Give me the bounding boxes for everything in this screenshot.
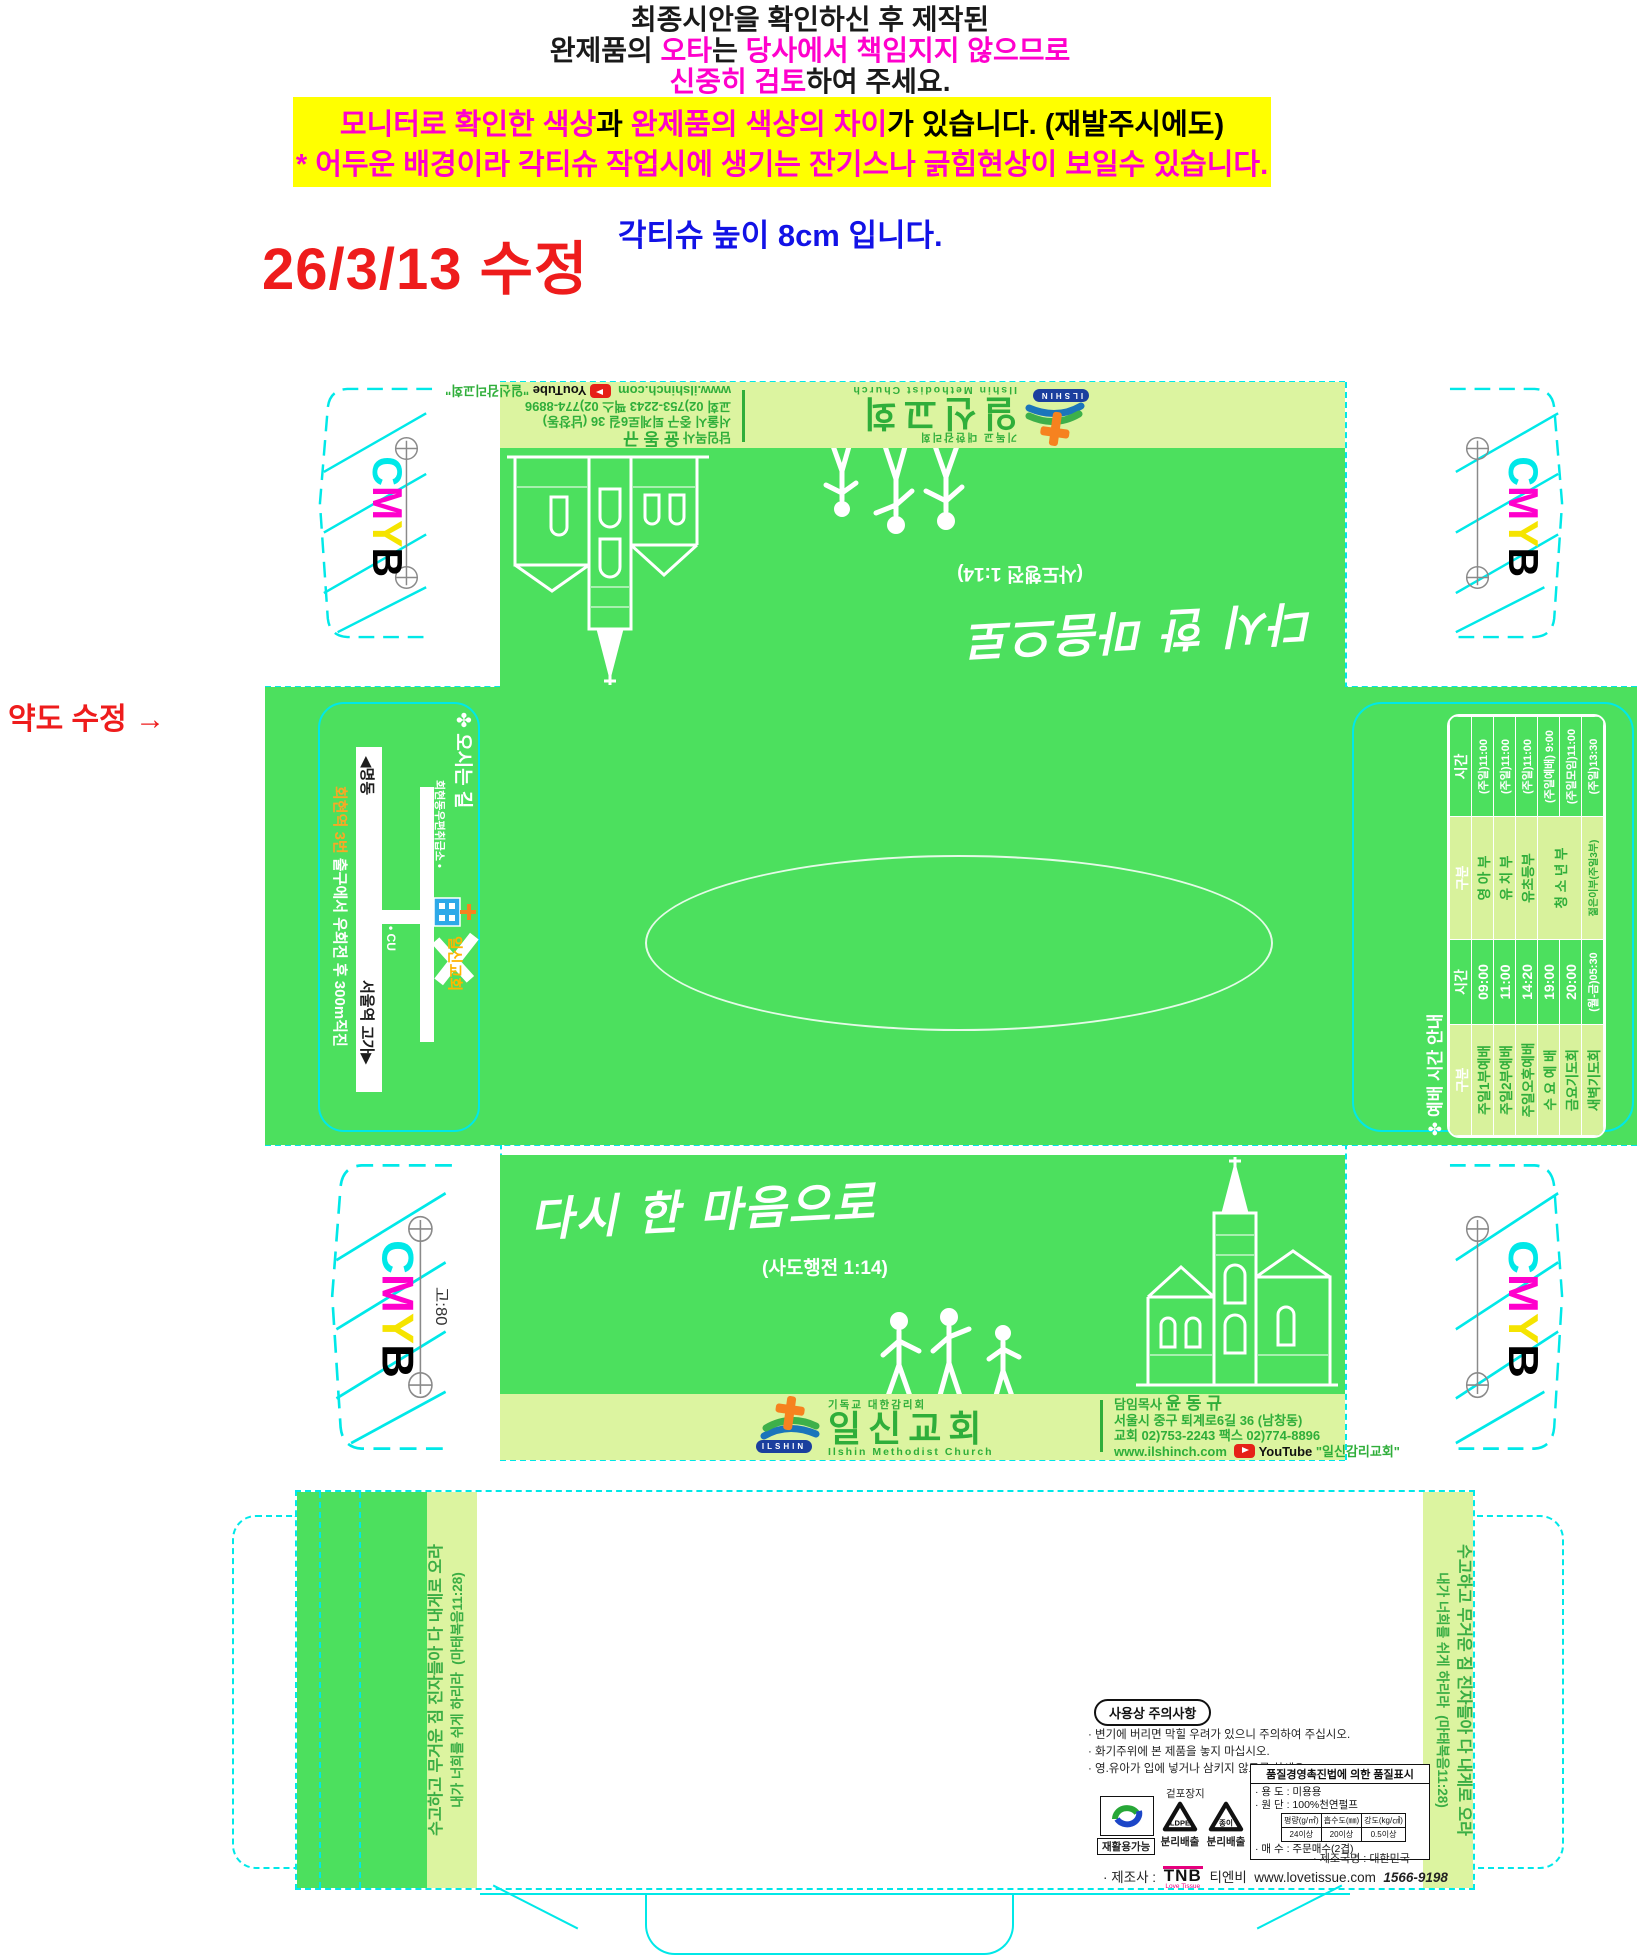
flap-top-right: CMYB (1448, 386, 1566, 640)
recycle-triangle-icon: LDPE (1160, 1800, 1200, 1834)
map-directions: 회현역 3번 출구에서 우회전 후 300m직진 (330, 786, 351, 1047)
flap-bottom-right: CMYB (1448, 1162, 1566, 1452)
manufacturer-line: · 제조사 : TNBLove Tissue 티엔비 www.lovetissu… (1103, 1866, 1448, 1892)
schedule-title: ✤ 예배 시간 안내 (1421, 1014, 1446, 1136)
church-name-en: Ilshin Methodist Church (828, 1446, 994, 1458)
map-revision-note: 약도 수정 → (8, 694, 165, 738)
cmyb-mark: CMYB (364, 456, 410, 577)
box-panel-front: 다시 한 마음으로 (사도행전 1:14) (500, 1155, 1345, 1460)
people-illustration (875, 1307, 1050, 1407)
map-title: ✤ 오시는 길 (451, 712, 478, 808)
cmyb-mark: CMYB (1500, 456, 1546, 577)
slogan-verse-ref: (사도행전 1:14) (762, 1253, 888, 1280)
quality-spec-box: 품질경영촉진법에 의한 품질표시 · 용 도 : 미용용 · 원 단 : 100… (1250, 1764, 1430, 1860)
quality-use: · 용 도 : 미용용 (1255, 1786, 1425, 1799)
recycle-symbol-paper: 종이 분리배출 (1206, 1800, 1246, 1849)
recycle-triangle-icon: 종이 (1206, 1800, 1246, 1834)
recyclable-mark (1100, 1796, 1154, 1836)
schedule-table-wrapper: 구분 시간 구분 시간 주일1부예배09:00 영 아 부(주일)11:00 주… (1447, 714, 1606, 1138)
care-item: · 화기주위에 본 제품을 놓지 마십시오. (1088, 1744, 1350, 1761)
phone-line: 교회 02)753-2243 팩스 02)774-8896 (445, 399, 731, 415)
tissue-opening-oval (645, 855, 1273, 1031)
flap-top-left: CMYB (316, 386, 434, 640)
col-header: 구분 (1450, 817, 1472, 940)
logo-text-block: 기독교 대한감리회 일신교회 Ilshin Methodist Church (828, 1397, 994, 1458)
proof-line-2: 완제품의 오타는 당사에서 책임지지 않으므로 (330, 35, 1290, 66)
schedule-row: 주일오후예배14:20 유초등부(주일)11:00 (1516, 717, 1538, 1136)
schedule-row: 수 요 예 배19:00 청 소 년 부(주일예배) 9:00 (1538, 717, 1560, 1136)
fold-line (319, 1492, 321, 1888)
phone-line: 교회 02)753-2243 팩스 02)774-8896 (1114, 1428, 1400, 1444)
map-panel: ✤ 오시는 길 회현동우편취급소 • 일신교회 • CU ◀명동 서울역 고가▶… (318, 702, 478, 1132)
proof-line-3: 신중히 검토하여 주세요. (330, 66, 1290, 97)
recyclable-mark-icon (1101, 1797, 1153, 1835)
bible-verse-right: 수고하고 무거운 짐 진자들아 다 내게로 오라 내가 너희를 쉬게 하리라 (… (1426, 1490, 1474, 1890)
quality-body: · 용 도 : 미용용 · 원 단 : 100%천연펄프 평량(g/㎡) 흡수도… (1251, 1784, 1429, 1859)
schedule-table: 구분 시간 구분 시간 주일1부예배09:00 영 아 부(주일)11:00 주… (1449, 716, 1604, 1136)
verse-line-2: 내가 너희를 쉬게 하리라 (마태복음11:28) (448, 1490, 468, 1890)
proof-line-1: 최종시안을 확인하신 후 제작된 (330, 4, 1290, 35)
church-name-en: Ilshin Methodist Church (851, 384, 1017, 396)
address-line: 서울시 중구 퇴계로6길 36 (남창동) (445, 414, 731, 430)
quality-header: 품질경영촉진법에 의한 품질표시 (1251, 1765, 1429, 1784)
web-line: www.ilshinch.com YouTube "일신감리교회" (1114, 1444, 1400, 1460)
banner-line-1: 모니터로 확인한 색상과 완제품의 색상의 차이가 있습니다. (재발주시에도) (293, 105, 1271, 145)
ilshin-badge: ILSHIN (1033, 389, 1089, 402)
map-label-myeongdong: ◀명동 (357, 756, 378, 795)
brand-footer-strip: ILSHIN 기독교 대한감리회 일신교회 Ilshin Methodist C… (500, 382, 1345, 448)
logo-badge-holder: ILSHIN (756, 1394, 816, 1454)
pastor-line: 담임목사 윤 동 규 (1114, 1396, 1400, 1413)
logo-badge-holder: ILSHIN (1029, 388, 1089, 448)
address-line: 서울시 중구 퇴계로6길 36 (남창동) (1114, 1413, 1400, 1429)
flap-bottom-left: CMYB 고:80 (328, 1162, 454, 1452)
slogan-calligraphy: 다시 한 마음으로 (529, 1166, 878, 1250)
schedule-header-row: 구분 시간 구분 시간 (1450, 717, 1472, 1136)
youtube-icon (590, 385, 611, 399)
contact-block: 담임목사 윤 동 규 서울시 중구 퇴계로6길 36 (남창동) 교회 02)7… (445, 383, 731, 446)
dieline-proof-sheet: 최종시안을 확인하신 후 제작된 완제품의 오타는 당사에서 책임지지 않으므로… (0, 0, 1639, 1959)
pastor-line: 담임목사 윤 동 규 (445, 430, 731, 447)
proof-warning-text: 최종시안을 확인하신 후 제작된 완제품의 오타는 당사에서 책임지지 않으므로… (330, 4, 1290, 97)
care-item: · 변기에 버리면 막힐 우려가 있으니 주의하여 주십시오. (1088, 1727, 1350, 1744)
logo-text-block: 기독교 대한감리회 일신교회 Ilshin Methodist Church (851, 384, 1017, 445)
contact-block: 담임목사 윤 동 규 서울시 중구 퇴계로6길 36 (남창동) 교회 02)7… (1114, 1396, 1400, 1459)
footer-divider (1100, 1400, 1103, 1452)
church-map-icon (432, 893, 476, 931)
map-church-label: 일신교회 (445, 936, 466, 991)
panel-content: 다시 한 마음으로 (사도행전 1:14) (500, 1155, 1345, 1460)
church-name: 일신교회 (851, 396, 1017, 430)
rotated-panel-content: 다시 한 마음으로 (사도행전 1:14) (500, 382, 1345, 687)
revision-date: 26/3/13 수정 (262, 222, 588, 306)
ilshin-badge: ILSHIN (756, 1440, 812, 1453)
side-tab-left (232, 1515, 297, 1869)
bible-verse-left: 수고하고 무거운 짐 진자들아 다 내게로 오라 내가 너희를 쉬게 하리라 (… (426, 1490, 474, 1890)
quality-spec-table: 평량(g/㎡) 흡수도(㎜) 강도(kg/㎠) 24이상 20이상 0.5이상 (1281, 1813, 1406, 1842)
map-poi-cu: • CU (384, 926, 398, 951)
glue-tab-outline (645, 1895, 1014, 1955)
col-header: 시간 (1450, 940, 1472, 1025)
worship-schedule-panel: ✤ 예배 시간 안내 구분 시간 구분 시간 주일1부예배09:00 영 아 부… (1421, 718, 1601, 1138)
fold-line (359, 1492, 361, 1888)
bottom-glue-strip (297, 1492, 427, 1888)
wrapper-label: 겉포장지 (1166, 1786, 1205, 1801)
recycle-symbol-ldpe: LDPE 분리배출 (1160, 1800, 1200, 1849)
slogan-verse-ref: (사도행전 1:14) (957, 562, 1083, 589)
col-header: 시간 (1450, 717, 1472, 817)
map-poi-post-office: 회현동우편취급소 • (432, 780, 448, 868)
people-illustration (795, 435, 970, 535)
glue-tab-edge (493, 1885, 579, 1930)
recycle-label: 분리배출 (1160, 1834, 1200, 1849)
map-label-seoul-station: 서울역 고가▶ (357, 980, 378, 1065)
verse-line-2: 내가 너희를 쉬게 하리라 (마태복음11:28) (1432, 1490, 1452, 1890)
banner-line-2: * 어두운 배경이라 각티슈 작업시에 생기는 잔기스나 긁힘현상이 보일수 있… (293, 145, 1271, 185)
quality-material: · 원 단 : 100%천연펄프 (1255, 1799, 1425, 1812)
web-line: www.ilshinch.com YouTube "일신감리교회" (445, 383, 731, 399)
schedule-row: 새벽기도회(월-금)05:30 젊은이부(주일3부)(주일)13:30 (1582, 717, 1604, 1136)
cmyb-mark: CMYB (1500, 1240, 1546, 1378)
schedule-row: 주일2부예배11:00 유 치 부(주일)11:00 (1494, 717, 1516, 1136)
schedule-row: 주일1부예배09:00 영 아 부(주일)11:00 (1472, 717, 1494, 1136)
country-of-origin: · 제조국명 : 대한민국 (1313, 1850, 1410, 1866)
cmyb-mark: CMYB (373, 1240, 422, 1378)
verse-line-1: 수고하고 무거운 짐 진자들아 다 내게로 오라 (426, 1490, 448, 1890)
recyclable-label: 재활용가능 (1097, 1838, 1155, 1855)
care-instructions-title: 사용상 주의사항 (1094, 1699, 1211, 1726)
recycle-label: 분리배출 (1206, 1834, 1246, 1849)
side-tab-right (1477, 1515, 1564, 1869)
church-illustration (502, 449, 717, 687)
col-header: 구분 (1450, 1025, 1472, 1136)
youtube-icon (1234, 1444, 1255, 1458)
svg-text:종이: 종이 (1219, 1818, 1233, 1828)
tissue-height-note: 각티슈 높이 8cm 입니다. (618, 210, 943, 255)
church-illustration (1128, 1155, 1343, 1393)
color-warning-banner: 모니터로 확인한 색상과 완제품의 색상의 차이가 있습니다. (재발주시에도)… (293, 97, 1271, 187)
church-name: 일신교회 (828, 1412, 994, 1446)
footer-divider (743, 390, 746, 442)
svg-text:LDPE: LDPE (1170, 1819, 1190, 1828)
box-panel-top-rotated: 다시 한 마음으로 (사도행전 1:14) (500, 382, 1345, 687)
brand-footer-strip: ILSHIN 기독교 대한감리회 일신교회 Ilshin Methodist C… (500, 1394, 1345, 1460)
verse-line-1: 수고하고 무거운 짐 진자들아 다 내게로 오라 (1452, 1490, 1474, 1890)
flap-gauge-note: 고:80 (432, 1287, 449, 1326)
slogan-calligraphy: 다시 한 마음으로 (967, 592, 1316, 676)
tnb-logo: TNBLove Tissue (1163, 1871, 1203, 1892)
